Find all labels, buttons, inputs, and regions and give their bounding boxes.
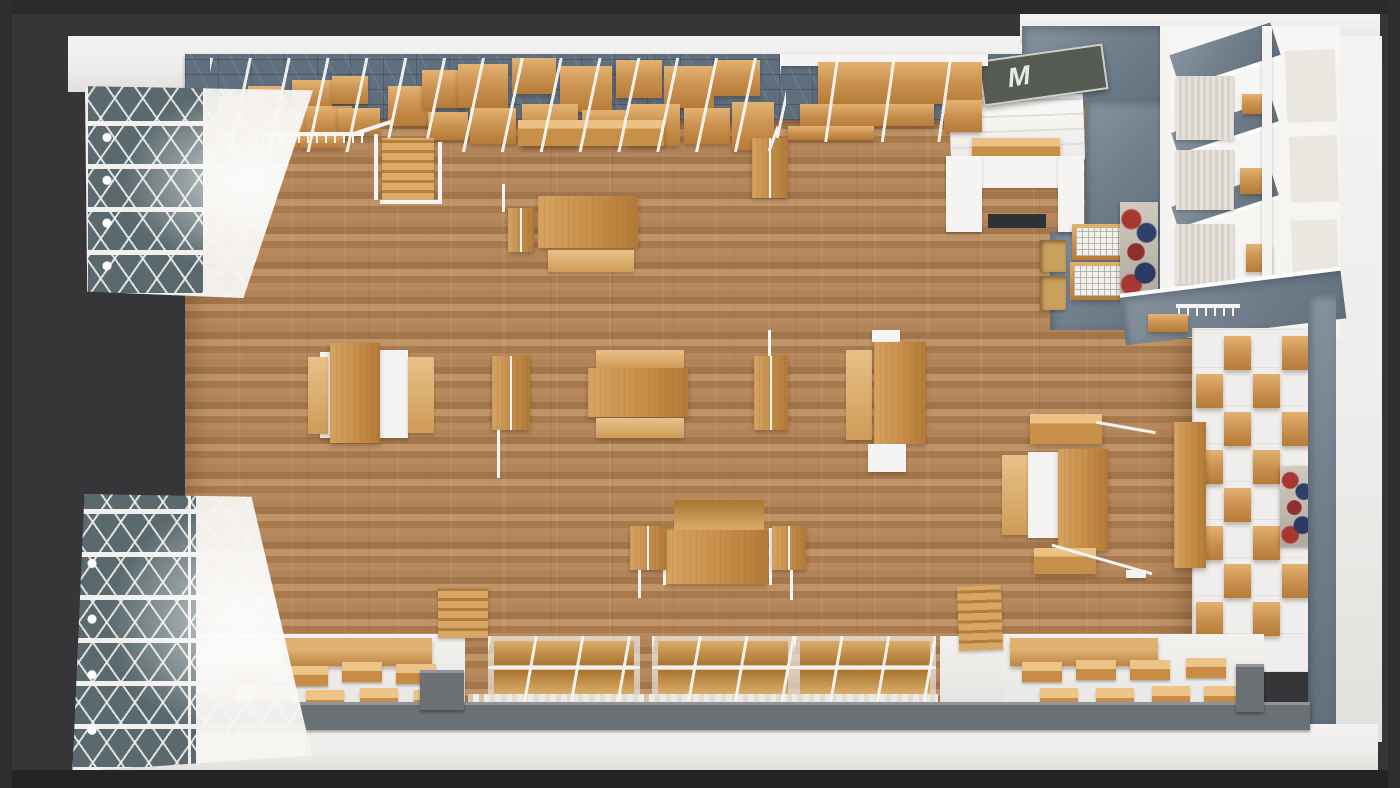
storefront-parapet: [420, 670, 464, 710]
storefront-parapet: [1236, 664, 1264, 712]
display-stand: [342, 662, 382, 682]
rack-divider: [647, 526, 649, 570]
cash-counter: [946, 156, 982, 232]
stair-railing: [438, 142, 442, 204]
display-table: [330, 343, 380, 443]
display-table: [1058, 449, 1108, 551]
cubby-grid: [1076, 228, 1122, 256]
back-room-doorway: [1285, 49, 1337, 123]
cash-counter: [1058, 156, 1084, 232]
shelf-box: [1253, 526, 1280, 560]
display-bench: [1002, 455, 1028, 535]
rack-pole: [790, 570, 793, 600]
shelf-box: [1196, 602, 1223, 636]
shelf-box: [1253, 450, 1280, 484]
framed-display-table: [794, 636, 936, 706]
tiered-display-shelf: [674, 500, 764, 530]
shelf-box: [1253, 374, 1280, 408]
shelf-box: [1253, 602, 1280, 636]
paneled-wall: [1176, 150, 1234, 210]
back-room-doorway: [1289, 135, 1339, 203]
display-bench: [308, 357, 328, 434]
rack-pole: [638, 570, 641, 598]
shelf-box: [1282, 336, 1309, 370]
rack-divider: [770, 356, 772, 430]
frame-edge: [0, 770, 1400, 788]
rack-divider: [510, 356, 512, 430]
counter-floor-mat: [988, 214, 1046, 228]
open-wood-box: [1040, 276, 1066, 310]
staircase: [957, 585, 1003, 650]
shelf-box: [1224, 488, 1251, 522]
shelf-box: [1224, 336, 1251, 370]
display-stand: [1186, 658, 1226, 678]
staircase: [438, 588, 488, 638]
slanted-display-slab: [494, 670, 634, 694]
display-rack: [508, 208, 534, 252]
render-background: { "sign": { "letter": "M" }, "palette": …: [0, 0, 1400, 788]
rack-divider: [788, 526, 790, 570]
display-cabinet: [1028, 452, 1058, 538]
display-table: [538, 196, 638, 248]
store-logo-letter: M: [1007, 59, 1033, 95]
shelf-box: [1196, 374, 1223, 408]
rack-pole: [497, 430, 500, 478]
frame-edge: [0, 0, 1400, 14]
display-table: [874, 342, 926, 444]
rail-stand: [1030, 414, 1102, 444]
framed-display-table: [488, 636, 640, 706]
display-rack: [754, 356, 788, 430]
paneled-wall: [1176, 224, 1234, 284]
rack-pole: [768, 330, 771, 356]
wall-display-table: [1174, 422, 1206, 568]
slanted-display-slab: [658, 641, 788, 665]
right-side-wall: [1308, 294, 1336, 724]
shelf-box: [1224, 412, 1251, 446]
shelf-box: [1224, 564, 1251, 598]
framed-display-table: [652, 636, 794, 706]
rack-pole: [502, 184, 505, 212]
staircase: [382, 138, 434, 200]
display-bench: [408, 357, 434, 433]
slanted-display-slab: [800, 641, 930, 665]
rail-stand: [1034, 548, 1096, 574]
display-rack: [772, 526, 806, 570]
slanted-display-slab: [800, 670, 930, 694]
wall-shelf-box: [1148, 314, 1188, 332]
cubby-drawer-unit: [1070, 262, 1126, 300]
frame-edge: [0, 0, 12, 788]
rack-divider: [520, 208, 522, 252]
display-bench: [596, 350, 684, 368]
display-rack: [492, 356, 530, 430]
display-bench: [596, 418, 684, 438]
display-cabinet: [872, 330, 900, 342]
frame-edge: [1388, 0, 1400, 788]
open-wood-box: [1040, 240, 1066, 272]
display-stand: [1130, 660, 1170, 680]
right-wall-band: [1336, 36, 1382, 742]
display-bench: [548, 250, 634, 272]
display-stand: [1022, 662, 1062, 682]
display-stand: [1076, 660, 1116, 680]
slanted-display-slab: [658, 670, 788, 694]
stair-railing: [380, 200, 440, 204]
display-cabinet: [380, 350, 408, 438]
floor-mat: [1126, 570, 1146, 578]
shelf-box: [1282, 412, 1309, 446]
display-rack: [630, 526, 666, 570]
display-table: [666, 530, 768, 584]
display-bench: [846, 350, 872, 440]
cubby-grid: [1074, 266, 1122, 296]
store-floorplan-top-view: M: [0, 0, 1400, 788]
display-table: [588, 368, 688, 417]
cubby-drawer-unit: [1072, 224, 1126, 260]
ceiling-joists: [780, 54, 990, 142]
shelf-box: [1282, 564, 1309, 598]
storefront-parapet: [172, 702, 1310, 730]
paneled-wall: [1176, 76, 1234, 140]
slanted-display-slab: [494, 641, 634, 665]
wall-poster: [1120, 202, 1158, 298]
display-cabinet: [868, 444, 906, 472]
stair-railing: [374, 134, 378, 200]
